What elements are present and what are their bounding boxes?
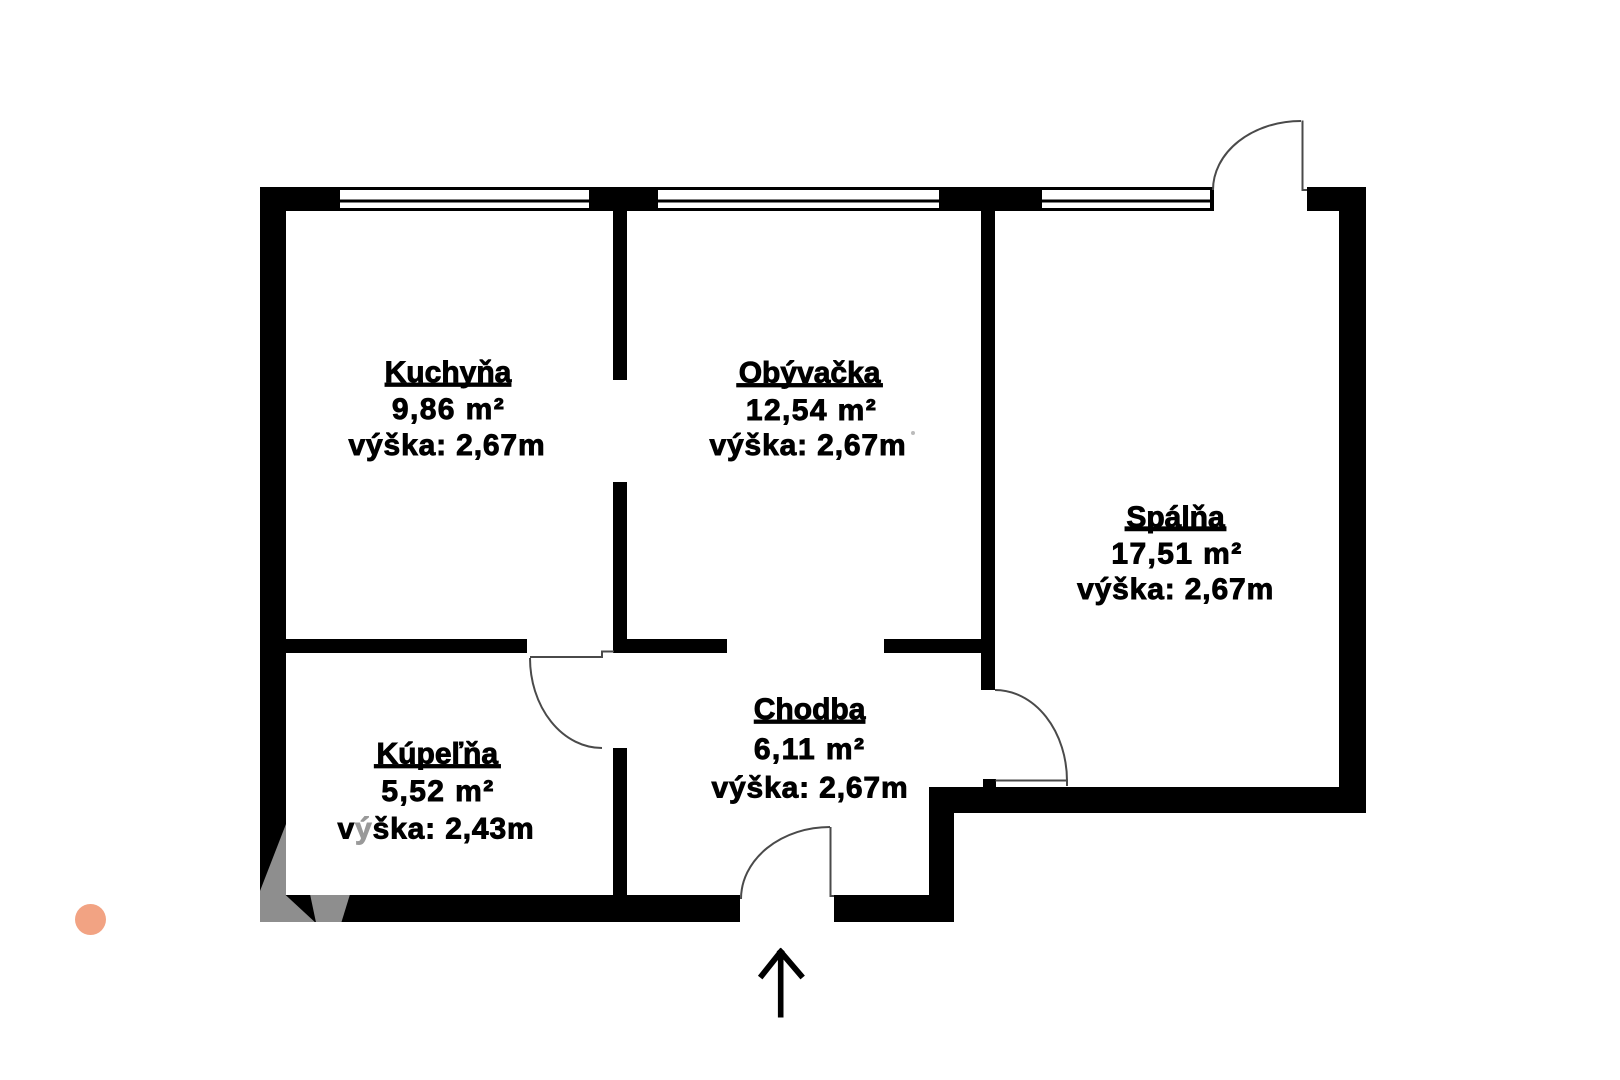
- svg-text:výška: 2,67m: výška: 2,67m: [709, 429, 906, 462]
- svg-text:výška: 2,67m: výška: 2,67m: [1077, 573, 1274, 606]
- svg-text:12,54 m²: 12,54 m²: [746, 394, 877, 427]
- svg-text:výška: 2,43m: výška: 2,43m: [337, 813, 534, 846]
- svg-text:6,11 m²: 6,11 m²: [754, 733, 866, 766]
- svg-text:17,51 m²: 17,51 m²: [1111, 538, 1242, 571]
- svg-text:výška: 2,67m: výška: 2,67m: [711, 772, 908, 805]
- svg-text:9,86 m²: 9,86 m²: [392, 393, 505, 426]
- svg-text:5,52 m²: 5,52 m²: [381, 775, 494, 808]
- svg-text:výška: 2,67m: výška: 2,67m: [348, 429, 545, 462]
